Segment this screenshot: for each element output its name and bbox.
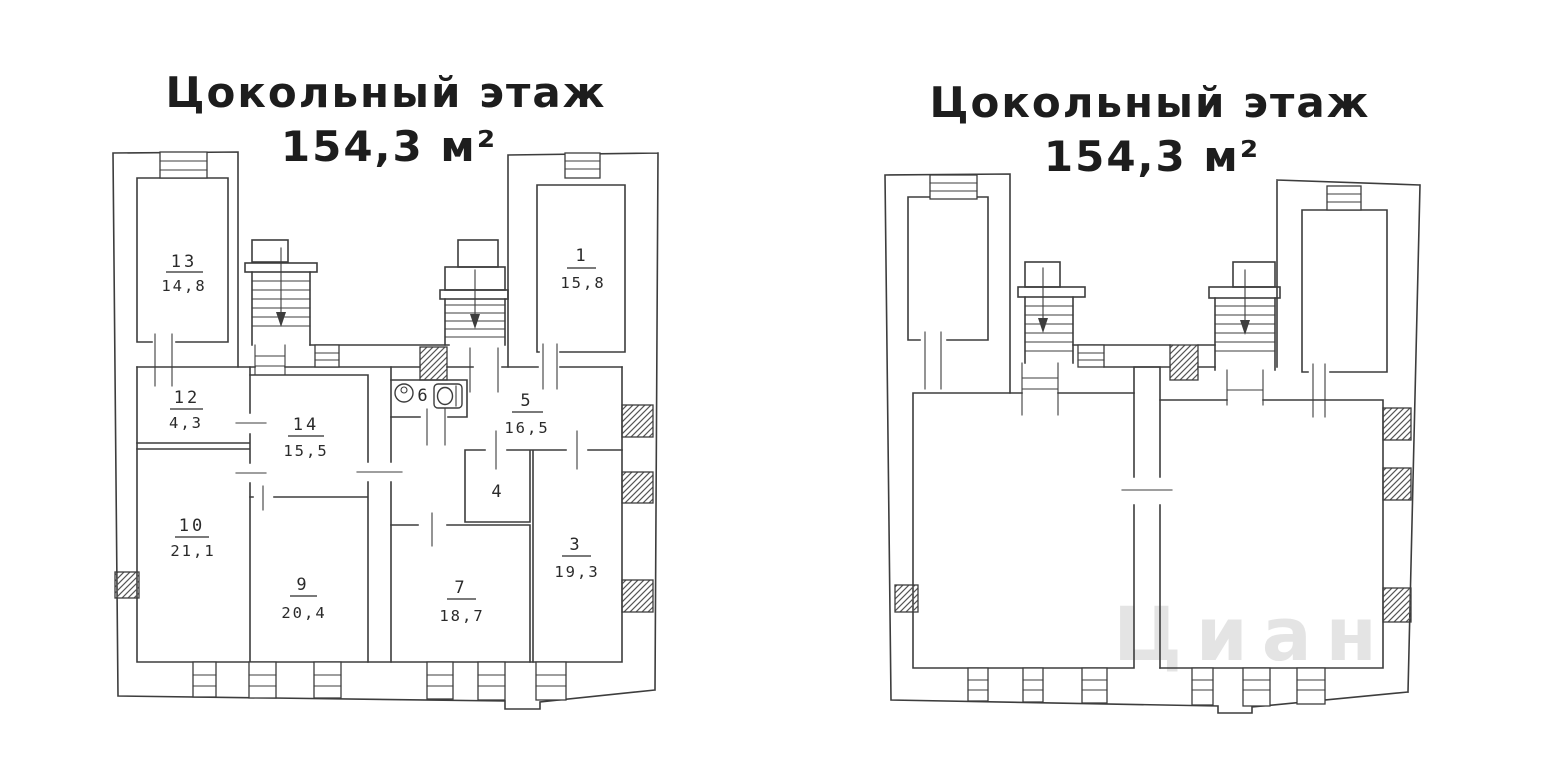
room-label-12: 12 4,3	[169, 388, 203, 432]
svg-text:19,3: 19,3	[554, 563, 599, 581]
room-label-3: 3 19,3	[554, 535, 599, 581]
room-label-7: 7 18,7	[439, 578, 484, 625]
room-label-6: 6	[417, 386, 430, 406]
svg-text:7: 7	[454, 578, 467, 598]
watermark: Циан	[1113, 592, 1391, 678]
stairs-icon	[1209, 262, 1280, 370]
floor-plan-drawing: Цокольный этаж 154,3 м²	[0, 0, 1553, 768]
svg-text:10: 10	[179, 516, 205, 536]
window-top-room1	[565, 153, 600, 178]
svg-text:9: 9	[296, 575, 309, 595]
room-label-5: 5 16,5	[504, 391, 549, 437]
svg-text:12: 12	[174, 388, 200, 408]
interior-walls-left	[137, 178, 625, 662]
svg-text:16,5: 16,5	[504, 419, 549, 437]
floor-plan-right: Цокольный этаж 154,3 м² Циан	[885, 78, 1420, 713]
stairs-icon	[440, 240, 508, 345]
plan-title-left: Цокольный этаж	[166, 68, 607, 117]
windows-bottom-left-plan	[193, 662, 566, 700]
room-label-10: 10 21,1	[170, 516, 215, 560]
svg-text:21,1: 21,1	[170, 542, 215, 560]
svg-text:6: 6	[417, 386, 430, 406]
svg-text:18,7: 18,7	[439, 607, 484, 625]
window-topwall-center	[1078, 345, 1104, 367]
svg-text:14: 14	[293, 415, 319, 435]
door-ticks-left-plan	[155, 334, 577, 546]
svg-text:1: 1	[575, 246, 588, 266]
window-top-wing-left	[930, 175, 977, 199]
svg-text:4,3: 4,3	[169, 414, 203, 432]
svg-text:4: 4	[491, 482, 504, 502]
svg-text:15,8: 15,8	[560, 274, 605, 292]
floor-plan-left: Цокольный этаж 154,3 м²	[113, 68, 658, 709]
stairs-icon	[1018, 262, 1085, 363]
window-top-room13	[160, 152, 207, 178]
chimney-hatch-right-plan	[895, 345, 1411, 622]
room-label-1: 1 15,8	[560, 246, 605, 292]
room-label-4: 4	[491, 482, 504, 502]
door-ticks-right-plan	[925, 332, 1325, 490]
room-label-9: 9 20,4	[281, 575, 326, 622]
svg-text:14,8: 14,8	[161, 277, 206, 295]
svg-text:5: 5	[520, 391, 533, 411]
stairs-icon	[245, 240, 317, 375]
room-label-14: 14 15,5	[283, 415, 328, 460]
svg-text:3: 3	[569, 535, 582, 555]
plan-area-left: 154,3 м²	[281, 122, 497, 171]
plan-area-right: 154,3 м²	[1044, 132, 1260, 181]
svg-text:20,4: 20,4	[281, 604, 326, 622]
window-topwall-center	[315, 345, 339, 367]
toilet-icon	[434, 384, 462, 408]
sink-icon	[395, 384, 413, 402]
room-label-13: 13 14,8	[161, 252, 206, 295]
floor-plan-page: Цокольный этаж 154,3 м²	[0, 0, 1553, 768]
svg-text:15,5: 15,5	[283, 442, 328, 460]
window-top-wing-right	[1327, 186, 1361, 210]
svg-text:13: 13	[171, 252, 197, 272]
plan-title-right: Цокольный этаж	[930, 78, 1371, 127]
